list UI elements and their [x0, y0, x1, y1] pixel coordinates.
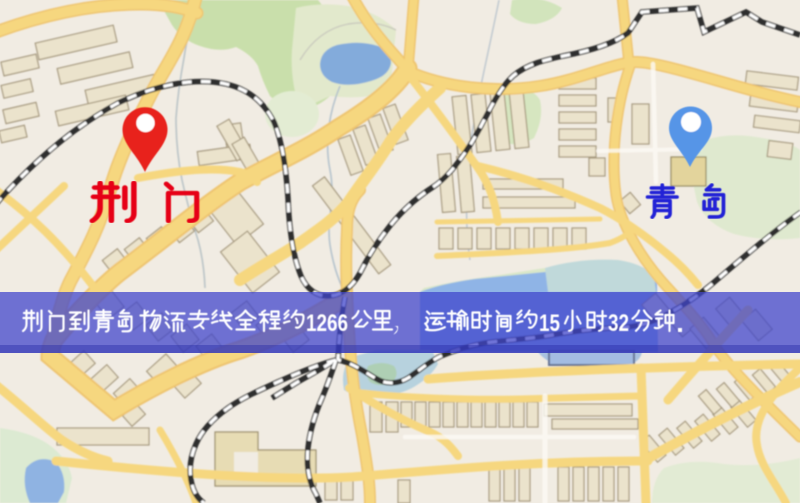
svg-text:1266: 1266	[306, 310, 348, 337]
svg-text:32: 32	[608, 310, 629, 337]
svg-text:15: 15	[539, 310, 560, 337]
